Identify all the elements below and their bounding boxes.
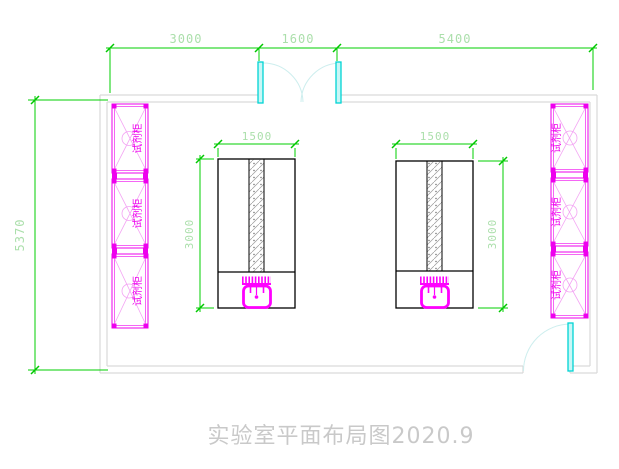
- double-door-top: [258, 62, 341, 103]
- cabinet-label: 试剂柜: [131, 199, 144, 229]
- cabinet-label: 试剂柜: [550, 197, 563, 227]
- reagent-cabinet-right-1: 试剂柜: [550, 104, 588, 172]
- cabinet-connector: [112, 249, 117, 254]
- cabinet-label: 试剂柜: [550, 123, 563, 153]
- cabinet-connector: [143, 174, 148, 179]
- cabinet-connector: [551, 173, 556, 178]
- door-swing-arc: [301, 63, 341, 102]
- cabinet-label: 试剂柜: [131, 124, 144, 154]
- cabinet-label: 试剂柜: [550, 270, 563, 300]
- dim-label-1600: 1600: [282, 32, 315, 46]
- reagent-cabinet-left-3: 试剂柜: [112, 254, 148, 328]
- dimension-top: 3000 1600 5400: [106, 32, 597, 93]
- door-leaf: [568, 323, 573, 371]
- reagent-cabinet-left-2: 试剂柜: [112, 179, 148, 248]
- lab-bench-right: 1500 3000: [392, 130, 508, 312]
- bench-reagent-shelf: [427, 161, 442, 271]
- cabinet-connector: [551, 247, 556, 252]
- dim-label-bench-left-width: 1500: [242, 130, 273, 143]
- cabinet-label: 试剂柜: [131, 276, 144, 306]
- door-leaf: [258, 62, 263, 103]
- door-swing-arc: [524, 324, 571, 371]
- room-walls: [100, 95, 597, 373]
- lab-bench-left: 1500 3000: [183, 130, 299, 312]
- dim-label-bench-right-width: 1500: [420, 130, 451, 143]
- cabinet-connector: [143, 249, 148, 254]
- cad-canvas: 3000 1600 5400 5370 1500 3000: [0, 0, 619, 469]
- cabinet-connector: [583, 247, 588, 252]
- reagent-cabinet-right-2: 试剂柜: [550, 178, 588, 246]
- cabinet-connector: [112, 174, 117, 179]
- reagent-cabinet-right-3: 试剂柜: [550, 252, 588, 318]
- dim-label-5400: 5400: [439, 32, 472, 46]
- door-bottom-right: [524, 323, 574, 371]
- bench-reagent-shelf: [249, 159, 264, 272]
- cabinet-connector: [583, 173, 588, 178]
- door-leaf: [336, 62, 341, 103]
- drawing-title: 实验室平面布局图2020.9: [208, 424, 475, 449]
- dim-label-bench-right-length: 3000: [486, 219, 499, 250]
- dim-label-5370: 5370: [13, 219, 27, 252]
- cad-drawing-page: 3000 1600 5400 5370 1500 3000: [0, 0, 619, 469]
- dim-label-3000: 3000: [170, 32, 203, 46]
- dim-label-bench-left-length: 3000: [183, 219, 196, 250]
- door-swing-arc: [263, 63, 303, 102]
- reagent-cabinet-left-1: 试剂柜: [112, 104, 148, 173]
- dimension-left: 5370: [13, 96, 108, 374]
